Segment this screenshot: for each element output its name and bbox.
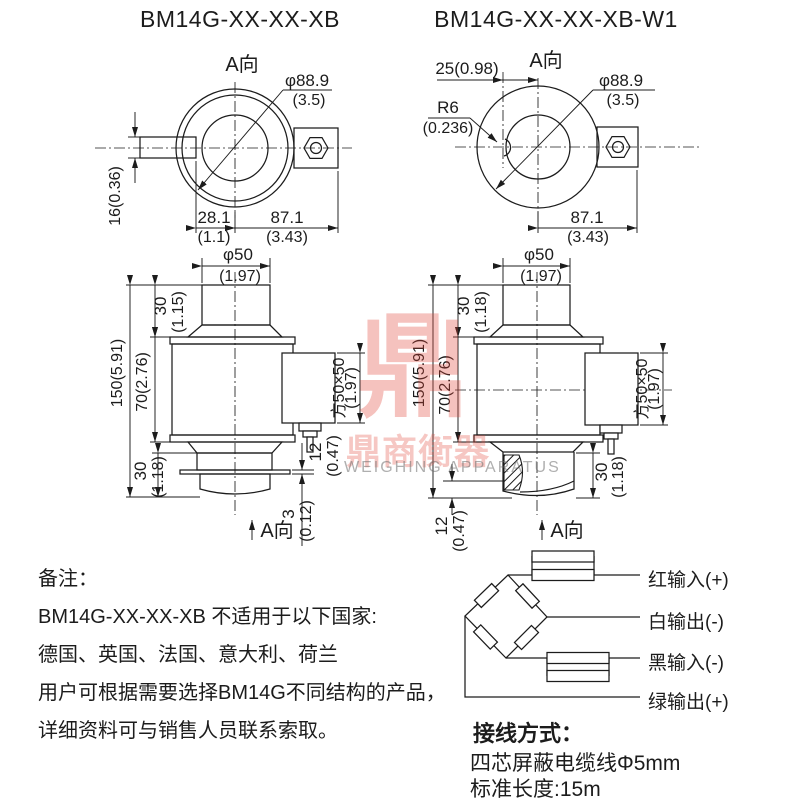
- dim-seat: 12: [432, 517, 451, 536]
- dim-span: 87.1: [270, 208, 303, 227]
- wire-label-white: 白输出(-): [648, 607, 724, 634]
- dim-total: 150(5.91): [109, 339, 126, 408]
- bridge-diamond: [465, 575, 547, 658]
- drawing-sheet: BM14G-XX-XX-XB BM14G-XX-XX-XB-W1 A向: [0, 0, 800, 800]
- dim-seat-in: (0.47): [451, 510, 468, 552]
- dim-thickness: 16(0.36): [107, 166, 124, 226]
- dim-offset: 28.1: [197, 208, 230, 227]
- body: [477, 344, 600, 435]
- body: [172, 344, 293, 435]
- cable-gland: [303, 431, 317, 437]
- dim-cap-dia-in: (1.97): [219, 268, 261, 285]
- dim-lower: 30: [131, 462, 150, 481]
- dim-box-in: (1.97): [343, 367, 360, 409]
- compensation-resistor: [547, 653, 609, 664]
- dim-span-in: (3.43): [266, 229, 308, 246]
- view-a-label: A向: [260, 519, 293, 542]
- leader-arrow: [496, 90, 593, 189]
- side-view-right: φ50 (1.97) 150(5.91) 30 (1.18) 70(2.76) …: [411, 245, 672, 552]
- notes-line: 用户可根据需要选择BM14G不同结构的产品，: [38, 674, 446, 712]
- upper-flange: [474, 337, 603, 344]
- dim-stub: 12: [306, 443, 325, 462]
- dim-radius: R6: [437, 98, 459, 117]
- top-cap: [202, 285, 270, 325]
- top-view-right: A向 25(0.98) R6 (0.236) φ88.9 (3.5): [423, 49, 700, 246]
- dim-cap-h: 30: [454, 297, 473, 316]
- dim-dia: φ88.9: [599, 71, 643, 90]
- dim-stub-in: (0.47): [325, 435, 342, 477]
- cable-gland: [299, 423, 321, 431]
- lower-flange: [474, 435, 603, 442]
- junction-box: [585, 353, 638, 425]
- notes-line: BM14G-XX-XX-XB 不适用于以下国家:: [38, 598, 446, 636]
- dim-dia-in: (3.5): [293, 92, 326, 109]
- dim-span-in: (3.43): [567, 229, 609, 246]
- wire-label-black: 黑输入(-): [648, 648, 724, 675]
- compensation-resistor: [532, 551, 594, 562]
- compensation-resistor: [532, 570, 594, 581]
- upper-flange: [170, 337, 295, 344]
- dim-plate: 3: [279, 509, 298, 518]
- bridge-resistor: [474, 625, 498, 649]
- dim-total: 150(5.91): [411, 339, 428, 408]
- notes-line: 详细资料可与销售人员联系索取。: [38, 712, 446, 750]
- notes-block: 备注： BM14G-XX-XX-XB 不适用于以下国家: 德国、英国、法国、意大…: [38, 560, 446, 750]
- dim-lower-in: (1.18): [610, 456, 627, 498]
- dim-cap-h-in: (1.18): [473, 291, 490, 333]
- dim-cap-dia: φ50: [524, 245, 554, 264]
- dim-dia: φ88.9: [285, 71, 329, 90]
- dim-span: 87.1: [570, 208, 603, 227]
- leader-arrow: [470, 118, 497, 142]
- top-cap: [503, 285, 570, 325]
- wiring-title: 接线方式：: [473, 716, 583, 748]
- dim-cap-dia: φ50: [223, 245, 253, 264]
- wiring-cable-length: 标准长度:15m: [470, 773, 601, 800]
- seat-edge: [520, 481, 574, 492]
- view-a-label: A向: [529, 49, 562, 72]
- dim-plate-in: (0.12): [298, 500, 315, 542]
- cable-gland: [604, 433, 618, 439]
- cable-pin: [608, 439, 614, 454]
- junction-box: [282, 353, 335, 423]
- wire-label-red: 红输入(+): [648, 565, 729, 592]
- dim-radius-in: (0.236): [423, 120, 474, 137]
- side-view-left: φ50 (1.97) 150(5.91) 30 (1.15) 70(2.76) …: [109, 245, 365, 546]
- dim-dia-in: (3.5): [607, 92, 640, 109]
- cable-gland: [600, 425, 622, 433]
- left-tab-edge: [140, 137, 196, 158]
- cap-flare: [490, 325, 583, 337]
- bridge-resistor: [474, 584, 498, 608]
- dim-cap-h: 30: [151, 297, 170, 316]
- view-a-label: A向: [225, 53, 258, 76]
- dim-box-in: (1.97): [646, 368, 663, 410]
- dim-mid: 70(2.76): [134, 352, 151, 412]
- dim-lower: 30: [592, 463, 611, 482]
- dim-mid: 70(2.76): [437, 355, 454, 415]
- bridge-resistor: [514, 625, 538, 649]
- bridge-resistor: [516, 584, 540, 608]
- wire-label-green: 绿输出(+): [648, 687, 729, 714]
- dim-lower-in: (1.18): [150, 456, 167, 498]
- leader-arrow: [198, 90, 283, 190]
- dim-offset-in: (1.1): [198, 229, 231, 246]
- view-a-label: A向: [550, 519, 583, 542]
- lower-neck: [490, 442, 583, 452]
- lower-cap: [197, 453, 272, 470]
- dim-offset25: 25(0.98): [435, 59, 498, 78]
- top-view-left: A向 φ88.9 (3.5) 16(0.36): [95, 53, 352, 246]
- section-hatch: [504, 455, 523, 490]
- notes-line: 德国、英国、法国、意大利、荷兰: [38, 636, 446, 674]
- compensation-resistor: [547, 671, 609, 682]
- bridge-circuit: [465, 551, 640, 697]
- dim-cap-h-in: (1.15): [170, 291, 187, 333]
- lower-flange: [170, 435, 295, 442]
- notes-line: 备注：: [38, 560, 446, 598]
- dim-cap-dia-in: (1.97): [520, 268, 562, 285]
